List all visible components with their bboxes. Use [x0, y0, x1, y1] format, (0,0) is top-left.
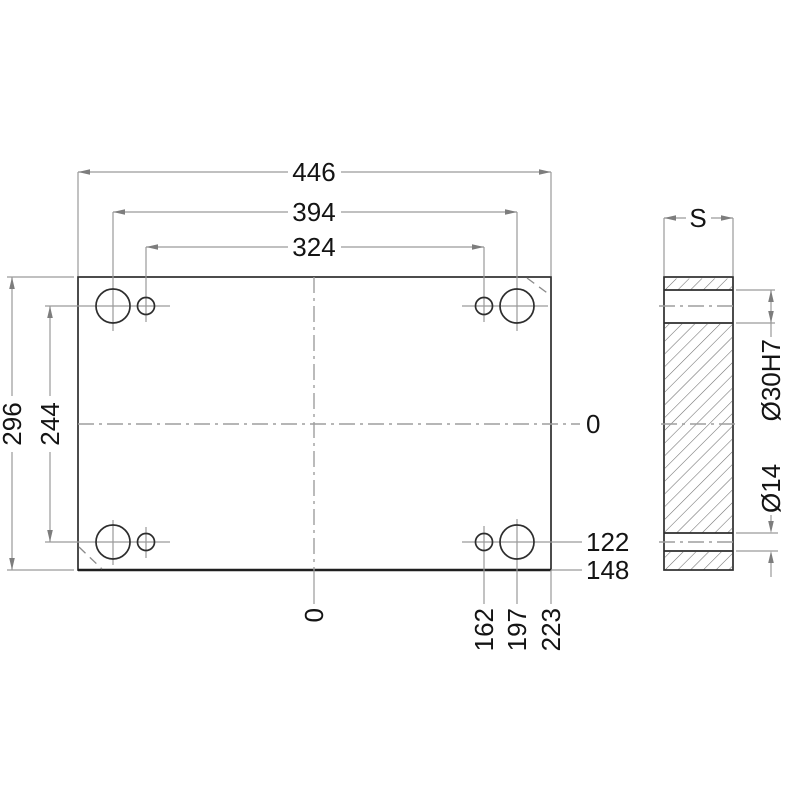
hatch-middle [665, 324, 732, 533]
dim-label-thickness: S [689, 203, 706, 233]
bottom-ordinates: 0 162 197 223 [299, 608, 566, 651]
top-dimensions: 446 394 324 [78, 157, 551, 276]
dim-label-overall-width: 446 [292, 157, 335, 187]
dimension-arrow [505, 209, 517, 215]
ordinate-label-center-x: 0 [299, 608, 329, 622]
dimension-arrow [721, 215, 733, 221]
dim-label-large-bore: Ø30H7 [756, 339, 786, 421]
ordinate-label-right-edge-x: 223 [536, 608, 566, 651]
engineering-drawing-canvas: 446 394 324 296 244 0 122 148 [0, 0, 800, 800]
dimension-arrow [146, 244, 158, 250]
dimension-arrow [9, 277, 15, 289]
dim-label-small-bore: Ø14 [756, 464, 786, 513]
ordinate-label-bottom-edge: 148 [586, 555, 629, 585]
dimension-arrow [664, 215, 676, 221]
dimension-arrow [539, 169, 551, 175]
chamfer-top-right [527, 278, 550, 295]
dim-label-overall-height: 296 [0, 402, 27, 445]
large-bore-dimension: Ø30H7 [736, 290, 786, 421]
dim-label-small-hole-spacing: 324 [292, 232, 335, 262]
dimension-arrow [472, 244, 484, 250]
dim-label-large-hole-spacing: 394 [292, 197, 335, 227]
dimension-arrow [768, 290, 774, 302]
dimension-arrow [113, 209, 125, 215]
ordinate-label-hole-row: 122 [586, 527, 629, 557]
ordinate-label-center-y: 0 [586, 409, 600, 439]
right-ordinates: 0 122 148 [551, 409, 629, 585]
dimension-arrow [47, 306, 53, 318]
small-bore-dimension: Ø14 [736, 464, 786, 577]
side-view: S Ø30H7 Ø14 [659, 203, 786, 577]
dimension-arrow [768, 521, 774, 533]
dimension-arrow [768, 551, 774, 563]
dimension-arrow [47, 530, 53, 542]
dim-label-hole-spacing-y: 244 [35, 402, 65, 445]
ordinate-label-small-hole-x: 162 [469, 608, 499, 651]
thickness-dimension: S [664, 203, 733, 276]
hatch-top-band [665, 279, 732, 290]
ordinate-label-large-hole-x: 197 [502, 608, 532, 651]
left-dimensions: 296 244 [0, 277, 74, 570]
hatch-bottom-band [665, 552, 732, 570]
dimension-arrow [9, 558, 15, 570]
dimension-arrow [768, 311, 774, 323]
front-view: 446 394 324 296 244 0 122 148 [0, 157, 629, 651]
dimension-arrow [78, 169, 90, 175]
drawing-svg: 446 394 324 296 244 0 122 148 [0, 0, 800, 800]
